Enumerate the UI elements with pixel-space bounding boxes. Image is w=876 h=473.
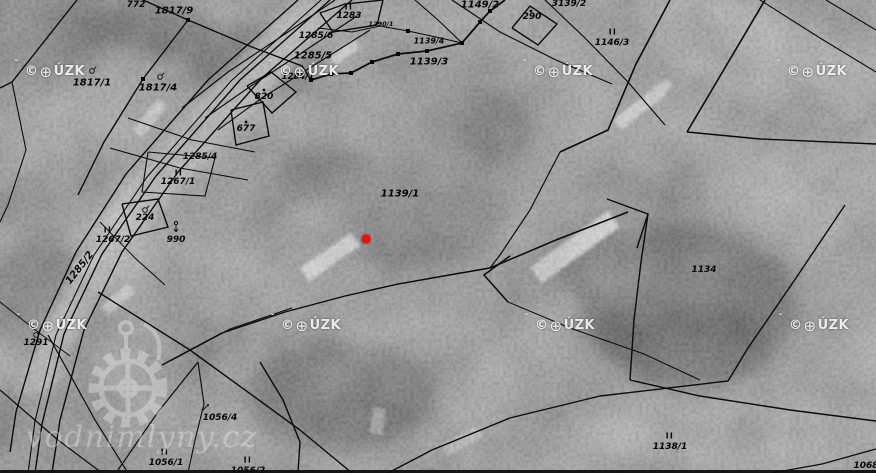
survey-point-marker [141,77,145,81]
survey-point-marker [396,52,400,56]
tree-symbol [158,73,165,79]
survey-point-marker [478,20,482,24]
dot-symbol [263,89,266,92]
survey-point-marker [349,71,353,75]
tree-symbol [143,206,150,213]
boundary-lines-group [0,0,876,473]
survey-point-marker [425,49,429,53]
parcel-boundary-layer [0,0,876,473]
survey-point-marker [186,18,190,22]
tree-symbol [90,67,97,73]
survey-point-marker [309,78,313,82]
survey-point-marker [406,29,410,33]
dot-symbol [530,10,533,13]
arrow-down-symbol [174,221,178,232]
survey-point-marker [370,60,374,64]
dot-symbol [245,121,248,124]
location-marker[interactable] [362,235,371,244]
survey-point-marker [460,41,464,45]
map-viewport[interactable]: 7721817/91817/11817/48206771285/4II12831… [0,0,876,473]
survey-point-marker [329,72,333,76]
survey-point-marker [488,9,492,13]
